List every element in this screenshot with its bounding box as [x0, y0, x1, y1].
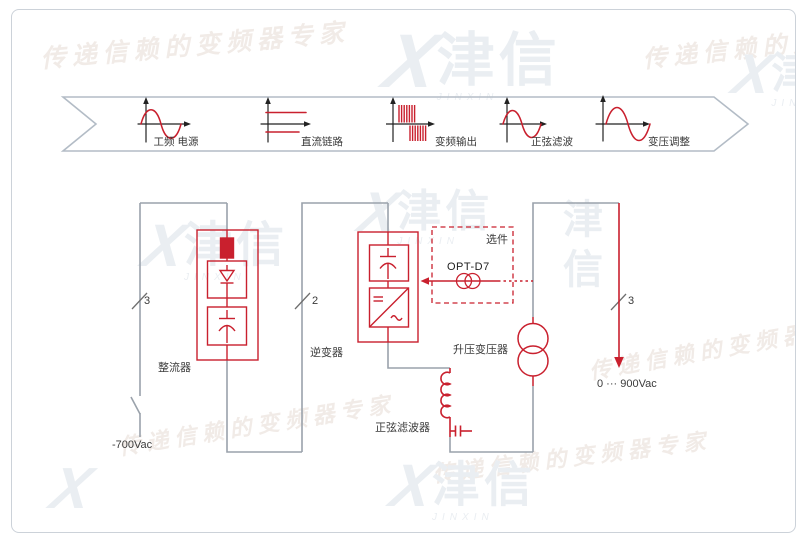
input-phase-count: 3	[144, 295, 150, 308]
capacitor-symbol	[450, 426, 472, 437]
sine-filter	[441, 368, 472, 437]
output-feeder	[614, 203, 624, 368]
inductor-coil-symbol	[441, 372, 450, 417]
circuit-diagram	[0, 0, 807, 542]
rectifier-block	[197, 230, 258, 360]
inverter-block	[358, 232, 418, 342]
inverter-label: 逆变器	[310, 347, 343, 360]
sine-filter-label: 正弦滤波器	[375, 422, 430, 435]
stage-label-sine-filter: 正弦滤波	[531, 136, 573, 148]
dc-ac-converter-symbol	[370, 288, 409, 327]
disconnect-switch	[131, 397, 140, 414]
fuse-symbol	[221, 238, 234, 258]
down-arrowhead-icon	[614, 357, 624, 368]
dc-capacitor-symbol	[208, 307, 247, 345]
diode-symbol	[208, 261, 247, 298]
option-part-number: OPT-D7	[447, 261, 490, 274]
stage-label-input-power: 工频 电源	[154, 136, 199, 148]
option-box-title: 选件	[486, 234, 508, 247]
output-phase-count: 3	[628, 295, 634, 308]
sine-wave-icon	[596, 95, 650, 141]
rectifier-label: 整流器	[158, 362, 191, 375]
dc-link-phase-count: 2	[312, 295, 318, 308]
left-arrowhead-icon	[421, 277, 430, 285]
output-voltage-label: 0 ··· 900Vac	[597, 378, 657, 391]
stage-label-dc-link: 直流链路	[301, 136, 343, 148]
stage-label-vf-output: 变频输出	[435, 136, 477, 148]
transformer-label: 升压变压器	[453, 344, 508, 357]
pwm-pulses-icon	[386, 97, 435, 142]
dc-capacitor-symbol	[370, 245, 409, 281]
step-up-transformer-symbol	[518, 317, 548, 386]
stage-label-voltage-adjust: 变压调整	[648, 136, 690, 148]
input-voltage-label: -700Vac	[112, 439, 152, 452]
schematic-page: { "banner": { "stages": [ { "label": "工频…	[0, 0, 807, 542]
option-feedback-line	[421, 274, 534, 289]
